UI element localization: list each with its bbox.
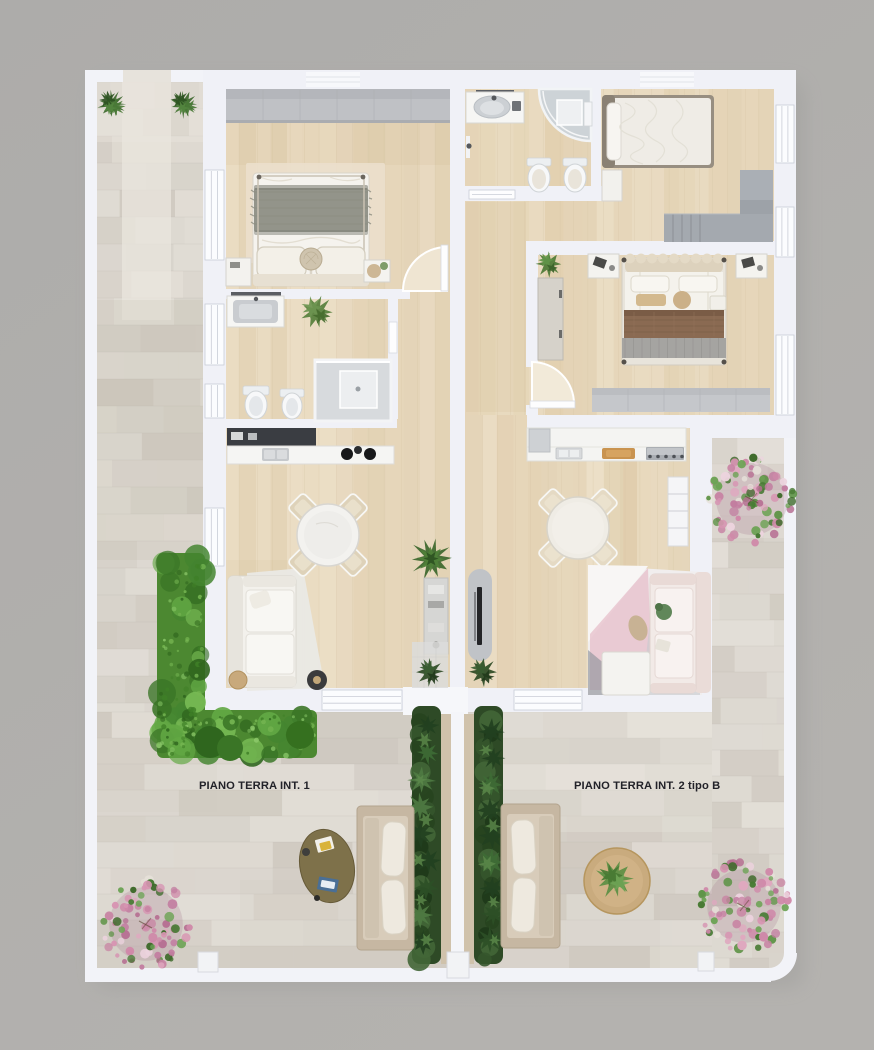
svg-text:PIANO TERRA INT. 1: PIANO TERRA INT. 1 <box>199 780 310 792</box>
svg-text:PIANO TERRA INT. 2 tipo B: PIANO TERRA INT. 2 tipo B <box>574 780 720 792</box>
